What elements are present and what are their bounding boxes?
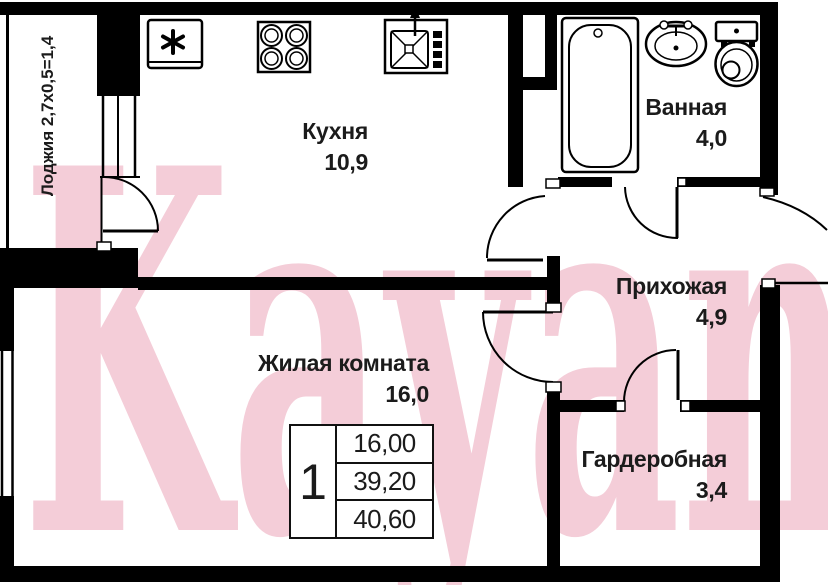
room-label-kitchen: Кухня 10,9 [302, 116, 368, 178]
room-label-wardrobe: Гардеробная 3,4 [581, 444, 727, 506]
area-summary-table: 1 16,00 39,20 40,60 [289, 424, 434, 539]
wall-wardrobe-top-left [558, 400, 624, 412]
area-without-loggia-cell: 39,20 [337, 462, 432, 500]
floor-plan: Kayan [0, 0, 828, 585]
kitchen-door [487, 196, 545, 260]
wall-living-wardrobe [547, 392, 560, 568]
room-label-loggia: Лоджия 2,7х0,5=1,4 [38, 36, 58, 196]
wall-wardrobe-top-right [680, 400, 760, 412]
room-label-living-room: Жилая комната 16,0 [258, 348, 429, 410]
room-name: Ванная [645, 94, 727, 120]
bathtub-icon [562, 18, 638, 172]
wall-wardrobe-right [760, 285, 780, 582]
toilet-icon [716, 22, 758, 86]
wall-kitchen-living-divider [138, 277, 547, 290]
room-name: Гардеробная [581, 446, 727, 472]
wall-loggia-divider [97, 15, 140, 96]
stove-icon [258, 22, 310, 72]
room-label-hallway: Прихожая 4,9 [616, 271, 727, 333]
room-name: Жилая комната [258, 350, 429, 376]
wall-living-left-lower [0, 497, 14, 566]
living-room-window [0, 350, 14, 497]
wall-kitchen-right [508, 15, 523, 187]
wall-left-chunk [0, 248, 138, 288]
room-area: 16,0 [258, 379, 429, 410]
wall-bathroom-bottom-left [558, 177, 612, 187]
room-name: Кухня [302, 118, 368, 144]
wall-living-left-upper [0, 287, 14, 350]
room-area: 10,9 [302, 147, 368, 178]
total-area-cell: 40,60 [337, 499, 432, 537]
entrance-door [763, 197, 827, 230]
wall-duct-horizontal [523, 77, 557, 90]
living-area-cell: 16,00 [337, 426, 432, 462]
wall-bathroom-right [760, 15, 778, 195]
washbasin-icon [646, 21, 706, 66]
room-label-bathroom: Ванная 4,0 [645, 92, 727, 154]
rooms-count-cell: 1 [291, 426, 337, 537]
wall-bathroom-bottom-right [677, 177, 760, 187]
kitchen-sink-icon [385, 6, 447, 73]
bathroom-door [625, 187, 678, 238]
wall-center-stub [547, 256, 560, 303]
room-name: Прихожая [616, 273, 727, 299]
wall-top [0, 2, 778, 15]
balcony-window [100, 96, 140, 242]
fridge-icon [148, 20, 202, 68]
wall-bottom [0, 566, 780, 582]
wardrobe-door [624, 350, 678, 402]
room-area: 4,0 [645, 123, 727, 154]
room-area: 4,9 [616, 302, 727, 333]
living-room-door [483, 312, 553, 382]
room-area: 3,4 [581, 475, 727, 506]
balcony-door [103, 177, 158, 231]
